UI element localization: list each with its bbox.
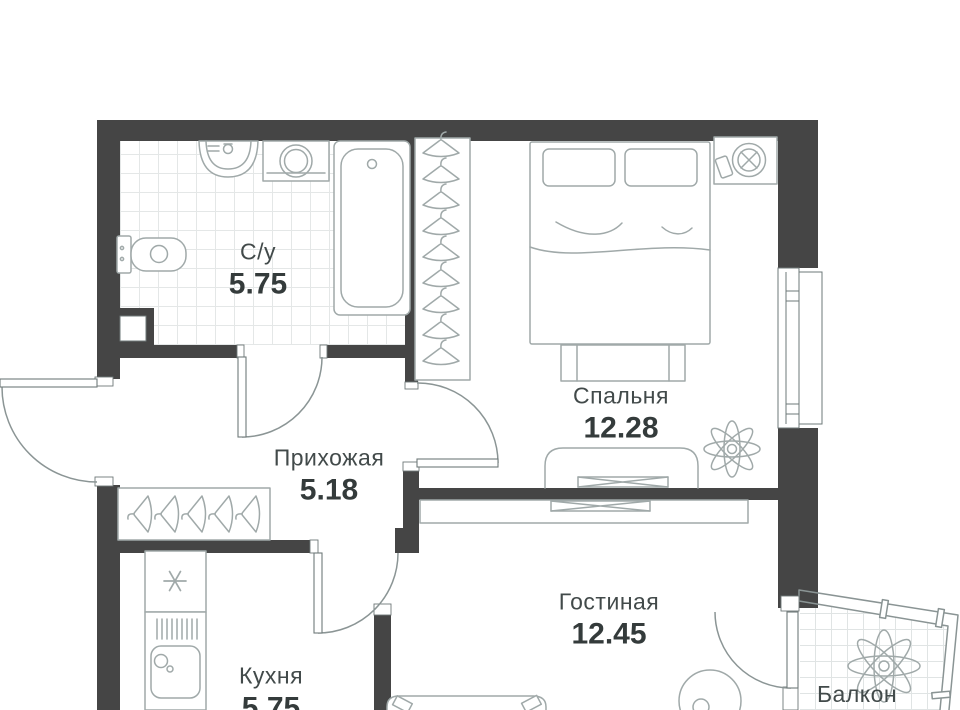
wall-top — [97, 120, 818, 141]
double-bed — [530, 142, 710, 344]
label-living: Гостиная 12.45 — [559, 589, 660, 652]
sofa — [387, 695, 546, 710]
label-bedroom: Спальня 12.28 — [573, 383, 669, 446]
wall-right-mid — [778, 428, 818, 608]
balcony-door-leaf — [787, 612, 798, 688]
bedroom-window — [778, 268, 822, 428]
armchair — [679, 670, 741, 710]
label-kitchen: Кухня 5.75 — [239, 663, 303, 710]
room-name: Кухня — [239, 663, 303, 689]
kitchen-door-leaf — [314, 553, 322, 633]
label-bathroom: С/у 5.75 — [229, 239, 287, 302]
room-area: 12.28 — [573, 412, 669, 446]
room-name: С/у — [229, 239, 287, 265]
phone — [715, 156, 733, 179]
wall-bath-south-right — [327, 345, 407, 358]
bathroom-door-leaf — [238, 357, 246, 437]
tv — [551, 501, 650, 511]
room-area: 5.75 — [239, 692, 303, 710]
entrance-door-leaf — [0, 379, 97, 387]
tv — [578, 477, 668, 487]
room-name: Прихожая — [274, 445, 385, 471]
bedroom-door-swing — [417, 383, 498, 463]
wall-left-lower — [97, 485, 120, 710]
bedroom-tv-console — [545, 448, 698, 488]
closet-hangers — [118, 488, 270, 540]
wall-bedroom-west — [405, 141, 418, 383]
room-name: Гостиная — [559, 589, 660, 615]
kitchen-sink — [145, 612, 206, 710]
living-tv-console — [420, 500, 748, 523]
wall-divider-stub — [395, 528, 419, 553]
label-balcony: Балкон — [817, 681, 897, 707]
wall-bedroom-south — [410, 488, 780, 500]
room-name: Спальня — [573, 383, 669, 409]
bed-bench — [561, 345, 685, 381]
floor-plan: С/у 5.75 Спальня 12.28 Прихожая 5.18 Кух… — [0, 0, 960, 710]
fridge-snowflake — [145, 551, 206, 612]
room-area: 5.75 — [229, 268, 287, 302]
room-area: 12.45 — [559, 618, 660, 652]
label-hallway: Прихожая 5.18 — [274, 445, 385, 508]
nightstand-fan — [714, 137, 777, 184]
wardrobe-hangers — [415, 132, 470, 380]
bedroom-door-leaf — [417, 459, 498, 467]
wall-shaft — [112, 308, 154, 348]
door-jambs — [95, 345, 799, 710]
wall-right-upper — [778, 141, 818, 268]
bathroom-door-swing — [242, 357, 322, 437]
wall-kitchen-north — [97, 540, 311, 553]
bedroom-plant — [704, 421, 760, 477]
room-area: 5.18 — [274, 474, 385, 508]
room-name: Балкон — [817, 681, 897, 707]
entrance-door-swing — [2, 387, 97, 482]
balcony-door-swing — [715, 612, 791, 688]
wall-kitchen-east — [374, 615, 391, 710]
window-ledge — [799, 272, 822, 424]
